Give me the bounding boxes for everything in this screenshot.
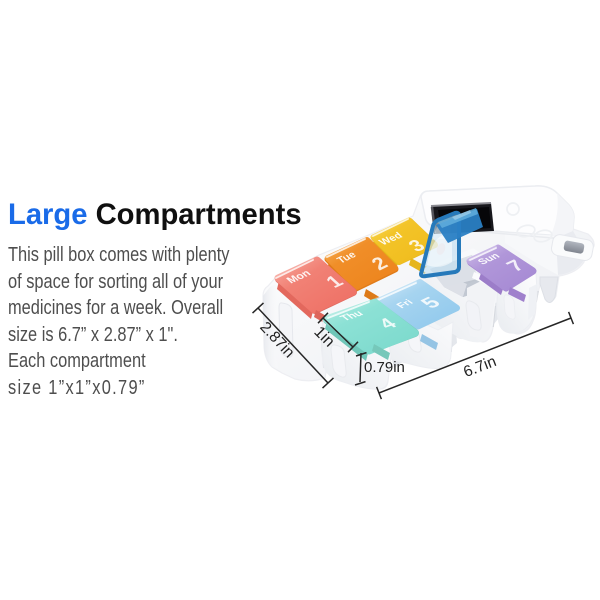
svg-text:0.79in: 0.79in [364,359,405,376]
svg-text:6.7in: 6.7in [461,353,498,381]
